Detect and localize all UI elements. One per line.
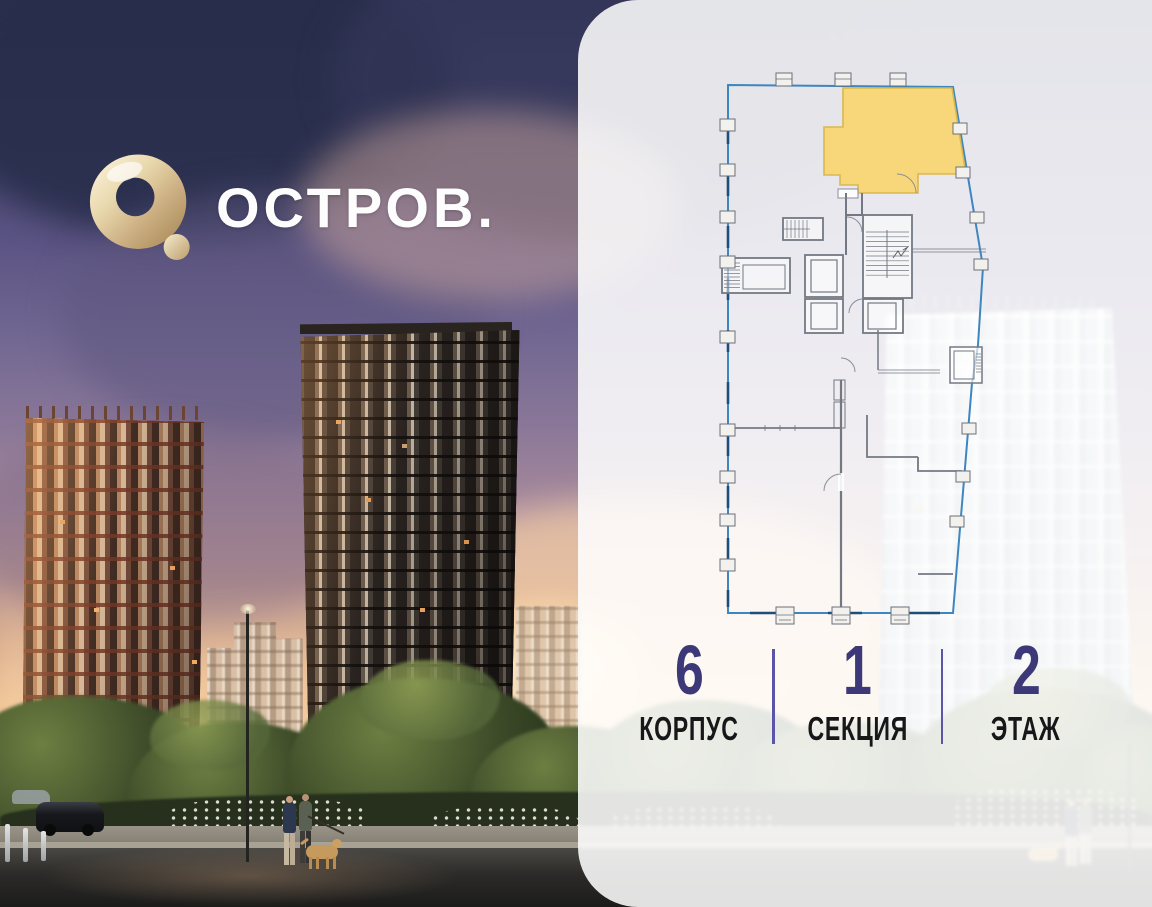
sektsiya-label: СЕКЦИЯ [807, 714, 907, 744]
floor-plan [710, 62, 1010, 642]
loggia [838, 189, 858, 198]
bollard [5, 824, 10, 862]
interior-walls [722, 193, 986, 611]
unit-info-sektsiya: 1 СЕКЦИЯ [775, 642, 941, 746]
door-gap [897, 172, 915, 176]
etazh-value: 2 [1012, 642, 1041, 698]
tree [360, 660, 500, 740]
lit-windows [60, 520, 65, 524]
ostrov-logo: ОСТРОВ. [88, 150, 508, 266]
tower-left-roof [26, 406, 198, 420]
korpus-label: КОРПУС [639, 714, 738, 744]
tree [150, 700, 270, 770]
selected-apartment-shape[interactable] [824, 88, 966, 193]
road-reflection [40, 846, 460, 906]
unit-info-korpus: 6 КОРПУС [606, 642, 772, 746]
street-lamp [246, 610, 249, 862]
car-wheel [82, 824, 94, 836]
street-lamp-light [240, 604, 256, 614]
etazh-label: ЭТАЖ [991, 714, 1060, 744]
ostrov-logo-mark-icon [88, 151, 194, 265]
ostrov-wordmark: ОСТРОВ. [216, 180, 497, 236]
lit-windows [336, 420, 341, 424]
apartment-card: ОСТРОВ. 6 КОРПУС 1 СЕКЦИЯ 2 ЭТАЖ [0, 0, 1152, 907]
unit-info-row: 6 КОРПУС 1 СЕКЦИЯ 2 ЭТАЖ [606, 642, 1108, 746]
bollard [41, 831, 46, 861]
sektsiya-value: 1 [843, 642, 872, 698]
unit-info-etazh: 2 ЭТАЖ [943, 642, 1109, 746]
bollard [23, 828, 28, 862]
korpus-value: 6 [675, 642, 704, 698]
